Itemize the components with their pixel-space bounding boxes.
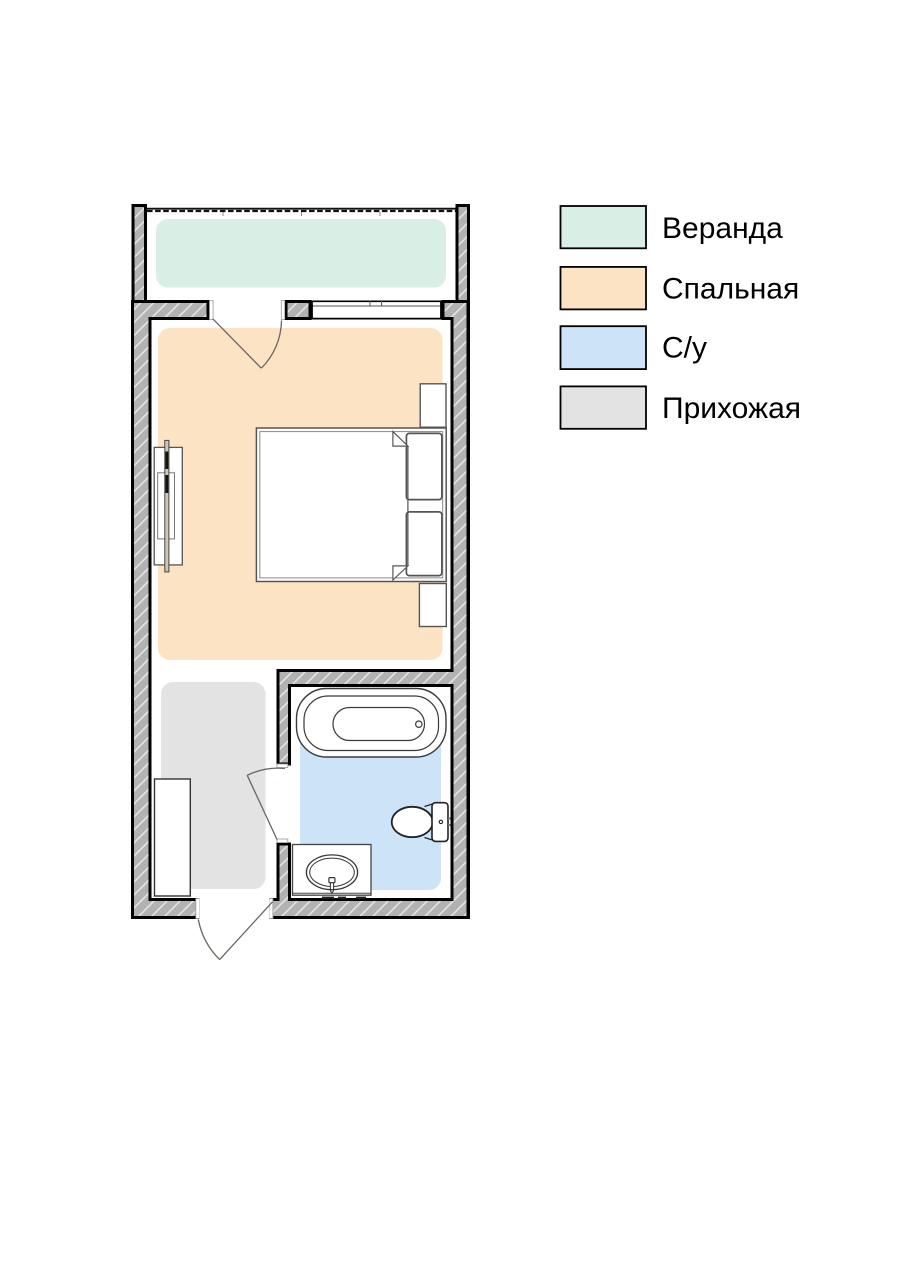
svg-text:Прихожая: Прихожая [662,392,801,425]
svg-text:Спальная: Спальная [662,273,799,306]
svg-text:С/у: С/у [662,332,707,365]
svg-text:Веранда: Веранда [662,212,783,245]
